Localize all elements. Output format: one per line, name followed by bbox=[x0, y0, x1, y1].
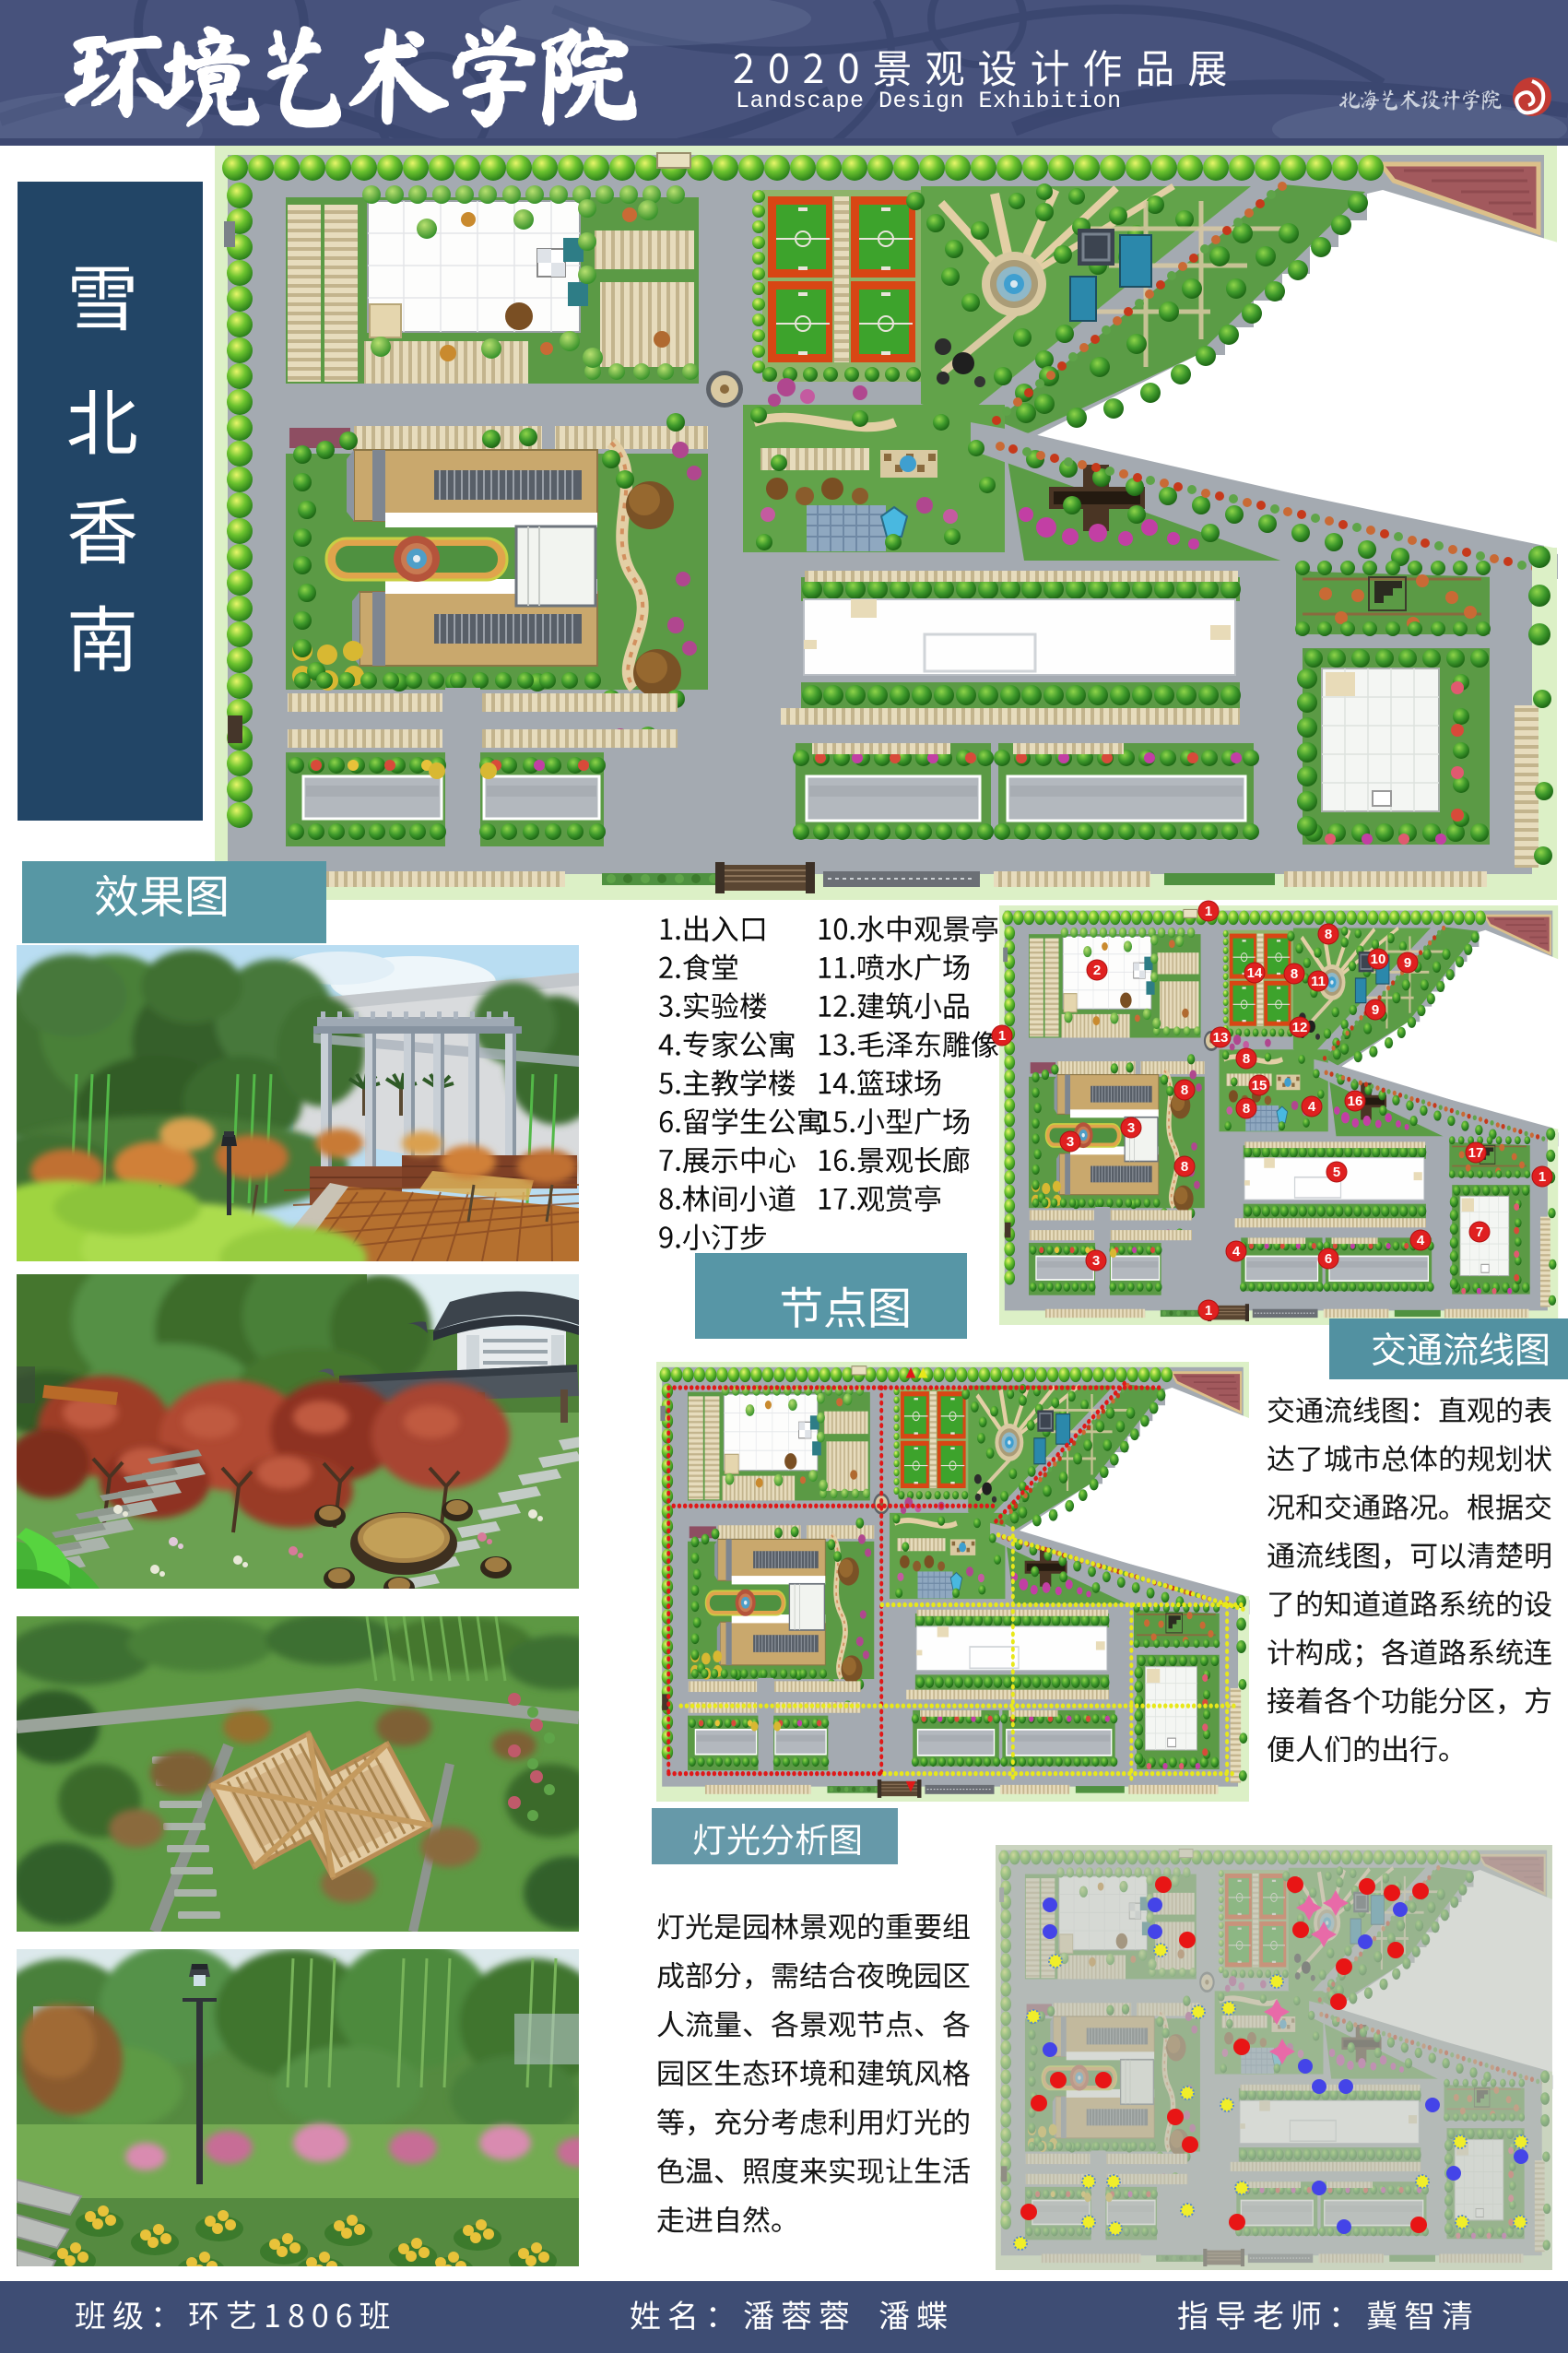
svg-text:8: 8 bbox=[1325, 927, 1332, 942]
svg-text:1: 1 bbox=[1539, 1169, 1546, 1185]
svg-text:1: 1 bbox=[1205, 904, 1212, 919]
svg-text:4: 4 bbox=[1417, 1233, 1425, 1248]
svg-text:15: 15 bbox=[1252, 1078, 1267, 1094]
svg-text:12: 12 bbox=[1292, 1020, 1308, 1035]
svg-text:3: 3 bbox=[1067, 1134, 1074, 1150]
svg-text:9: 9 bbox=[1404, 955, 1411, 971]
svg-text:8: 8 bbox=[1243, 1051, 1250, 1067]
svg-text:14: 14 bbox=[1247, 965, 1263, 981]
svg-text:7: 7 bbox=[1476, 1224, 1483, 1240]
svg-text:17: 17 bbox=[1468, 1145, 1484, 1161]
svg-text:4: 4 bbox=[1308, 1099, 1316, 1115]
svg-text:3: 3 bbox=[1092, 1253, 1100, 1269]
svg-text:6: 6 bbox=[1325, 1251, 1332, 1267]
svg-text:8: 8 bbox=[1291, 966, 1298, 982]
svg-text:2: 2 bbox=[1093, 963, 1101, 978]
svg-text:5: 5 bbox=[1333, 1165, 1340, 1180]
svg-text:13: 13 bbox=[1213, 1030, 1229, 1046]
svg-text:16: 16 bbox=[1348, 1094, 1363, 1109]
svg-text:9: 9 bbox=[1372, 1002, 1379, 1018]
svg-text:Landscape Design Exhibition: Landscape Design Exhibition bbox=[736, 88, 1122, 114]
svg-text:3: 3 bbox=[1127, 1120, 1135, 1136]
svg-text:1: 1 bbox=[998, 1028, 1006, 1044]
svg-text:8: 8 bbox=[1181, 1159, 1188, 1175]
svg-text:8: 8 bbox=[1243, 1101, 1250, 1117]
svg-text:4: 4 bbox=[1232, 1244, 1241, 1259]
svg-text:10: 10 bbox=[1371, 952, 1386, 967]
svg-text:11: 11 bbox=[1311, 974, 1326, 989]
svg-text:8: 8 bbox=[1181, 1082, 1188, 1098]
svg-text:1: 1 bbox=[1205, 1303, 1212, 1318]
